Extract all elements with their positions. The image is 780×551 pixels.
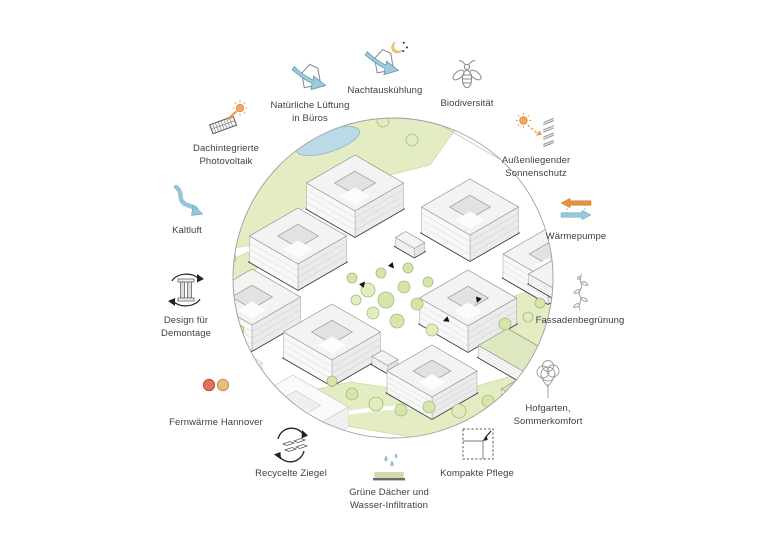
feature-facade-greening: Fassadenbegrünung	[520, 270, 640, 328]
feature-label: Fernwärme Hannover	[169, 417, 263, 430]
feature-label: Design für Demontage	[161, 315, 211, 340]
cold-air-arrow-icon	[165, 182, 209, 222]
sun-louvers-icon	[513, 110, 559, 152]
two-pipes-icon	[194, 372, 238, 400]
feature-label: Biodiversität	[440, 98, 493, 111]
feature-district-heating: Fernwärme Hannover	[156, 372, 276, 430]
column-recycle-icon	[164, 268, 208, 312]
green-roof-drops-icon	[366, 446, 412, 484]
feature-recycled-bricks: Recycelte Ziegel	[231, 423, 351, 481]
feature-biodiversity: Biodiversität	[407, 55, 527, 111]
climbing-plant-icon	[558, 270, 602, 312]
dashed-square-arrow-icon	[455, 423, 499, 465]
house-air-arrow-moon-icon	[361, 38, 409, 82]
feature-label: Kompakte Pflege	[440, 468, 514, 481]
bee-icon	[445, 55, 489, 95]
feature-label: Wärmepumpe	[546, 231, 607, 244]
feature-label: Natürliche Lüftung in Büros	[271, 100, 350, 125]
feature-label: Kaltluft	[172, 225, 202, 238]
feature-label: Recycelte Ziegel	[255, 468, 327, 481]
feature-label: Dachintegrierte Photovoltaik	[193, 143, 259, 168]
feature-cold-air: Kaltluft	[127, 182, 247, 238]
feature-courtyard-garden: Hofgarten, Sommerkomfort	[488, 356, 608, 428]
diagram-page: Dachintegrierte Photovoltaik Natürliche …	[0, 0, 780, 551]
feature-label: Grüne Dächer und Wasser-Infiltration	[349, 487, 429, 512]
feature-heat-pump: Wärmepumpe	[516, 190, 636, 244]
orange-blue-arrows-icon	[553, 190, 599, 228]
feature-label: Fassadenbegrünung	[536, 315, 625, 328]
solar-panel-sun-icon	[203, 100, 249, 140]
feature-design-for-disassembly: Design für Demontage	[126, 268, 246, 340]
sketch-tree-icon	[526, 356, 570, 400]
feature-label: Außenliegender Sonnenschutz	[502, 155, 570, 180]
feature-sun-protection: Außenliegender Sonnenschutz	[476, 110, 596, 180]
